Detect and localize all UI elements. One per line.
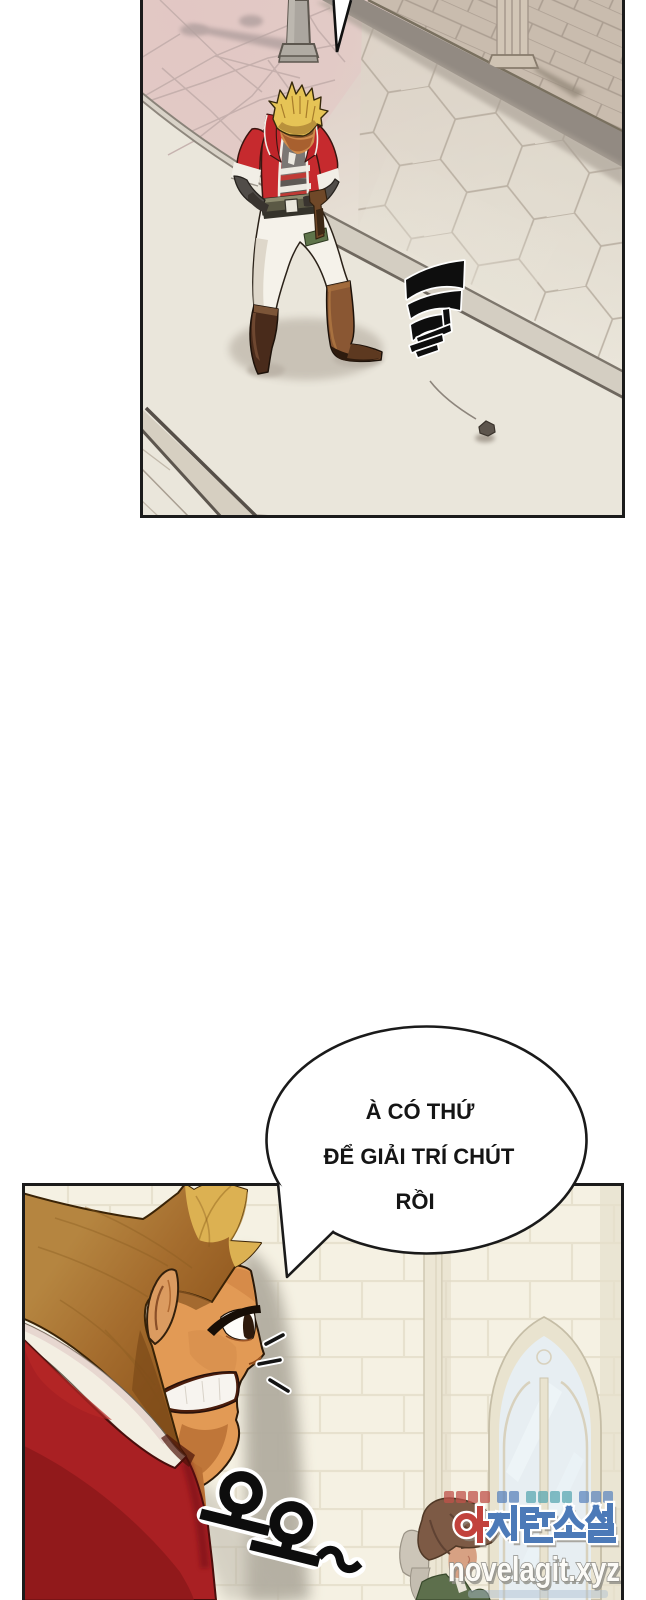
svg-text:À CÓ THỨ: À CÓ THỨ: [366, 1099, 475, 1124]
svg-text:novelagit.xyz: novelagit.xyz: [448, 1551, 620, 1589]
svg-text:RỒI: RỒI: [395, 1189, 434, 1214]
svg-text:ĐỂ GIẢI TRÍ CHÚT: ĐỂ GIẢI TRÍ CHÚT: [324, 1144, 515, 1169]
